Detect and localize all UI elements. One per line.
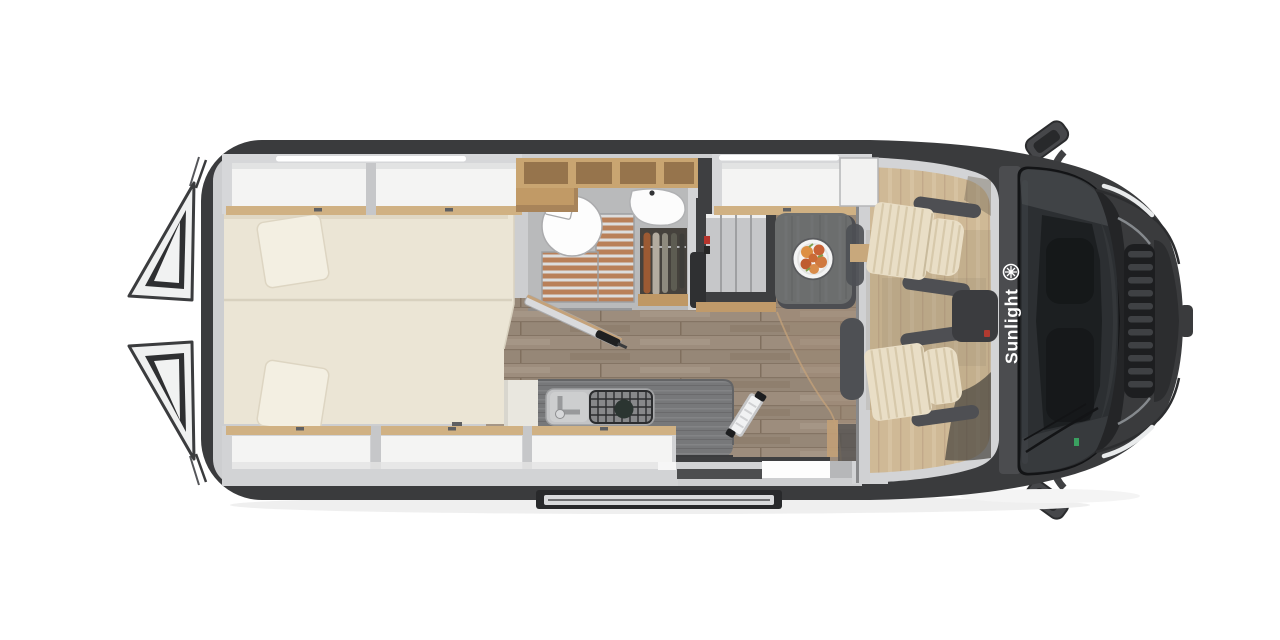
svg-text:Sunlight: Sunlight <box>1002 288 1022 364</box>
